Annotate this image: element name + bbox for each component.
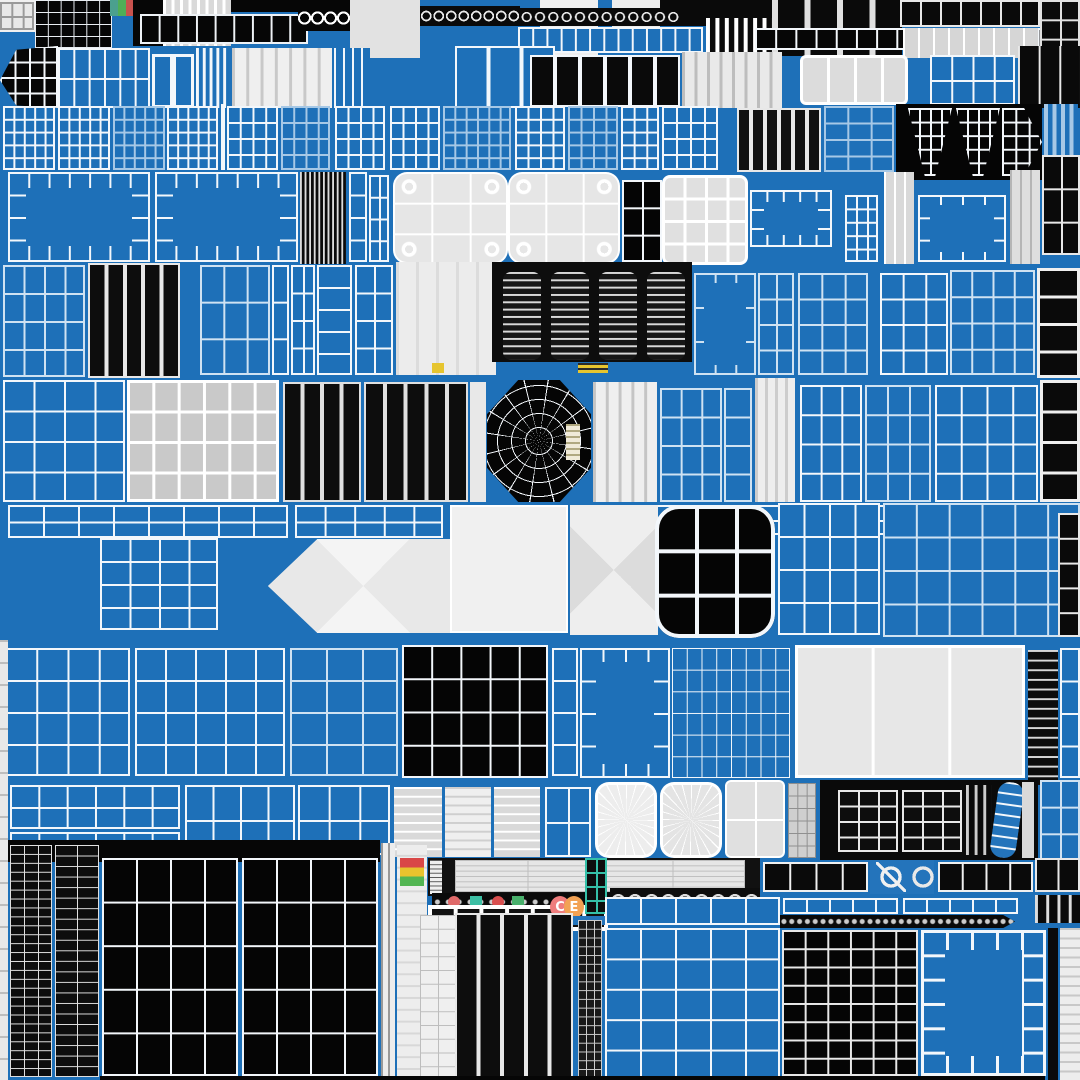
seat-b [508, 172, 620, 264]
grid-r6-d [865, 385, 931, 502]
radiator-3 [599, 272, 637, 360]
rail-bot-b [903, 898, 1018, 914]
grid-r3-d [167, 106, 218, 170]
slat-columns-b [682, 52, 782, 108]
black-grid-r9-b [902, 790, 962, 852]
blue-frame-sm [918, 195, 1006, 262]
blue-col-c [272, 265, 289, 375]
divider-line [221, 104, 225, 170]
dense-col-r8 [1028, 650, 1058, 785]
gray-col-r9b [1022, 782, 1034, 858]
grid-r3-m [824, 106, 894, 172]
black-arc-piece [1042, 155, 1080, 255]
radiator-2 [551, 272, 589, 360]
blue-slats-b [334, 48, 370, 108]
wire-ladder-b [55, 845, 99, 1077]
grid-r3-e [227, 106, 278, 170]
black-grid-r9-a [838, 790, 898, 852]
grid-r5-j [950, 270, 1035, 375]
black-grid-bl-b [242, 858, 378, 1076]
black-ladder-block [455, 913, 573, 1080]
door-panel-a-inner [26, 188, 132, 246]
blue-col-a [349, 172, 367, 262]
seat-underside [396, 262, 496, 375]
blue-panel-tr [930, 55, 1015, 105]
blue-window-frame [750, 190, 832, 247]
slat-sm-b [445, 787, 491, 857]
grid-r5-a [3, 265, 85, 377]
blue-frame-sm-inner [930, 205, 994, 252]
control-col [788, 783, 816, 858]
white-col-f [755, 378, 795, 502]
blue-window-frame-inner [764, 202, 818, 235]
bottom-edge [100, 1076, 1045, 1080]
thin-cols-bl [381, 843, 395, 1080]
vertical-text-chip [430, 860, 442, 894]
grid-r3-k [621, 106, 659, 170]
grill-dark [300, 172, 346, 264]
sq-frames-right [763, 862, 868, 892]
frame-r8-inner [596, 662, 654, 764]
blue-vstripes-a [196, 48, 230, 108]
black-col-br [1048, 928, 1058, 1080]
grid-r3-g [335, 106, 385, 170]
black-square-grid [402, 645, 548, 778]
grid-r6-b [660, 388, 722, 502]
grid-r5-f-inner [704, 283, 746, 365]
blue-grid-bot [605, 928, 780, 1080]
yellow-dash-b [578, 363, 608, 373]
fan-hub [566, 424, 580, 460]
grid-r3-j [568, 106, 618, 170]
grid-r3-h [390, 106, 440, 170]
blue-rail-bot-c [605, 897, 780, 925]
louver-c [364, 382, 468, 502]
fan-a [595, 782, 657, 858]
green-strip [118, 0, 126, 16]
fan-b [660, 782, 722, 858]
blue-frame-r9 [1040, 780, 1080, 860]
glyph-strip-b [520, 8, 680, 26]
wire-ladder-a [10, 845, 52, 1077]
door-panel-b [155, 172, 298, 262]
white-grid-sm [845, 195, 878, 262]
red-strip [126, 0, 133, 16]
arrow-left-panel [268, 539, 458, 633]
grid-r5-d [317, 265, 352, 375]
grid-r6-c [800, 385, 862, 502]
grid-r3-f [281, 106, 330, 170]
grid-r5-c [291, 265, 315, 375]
black-edge-tr [1018, 46, 1080, 108]
grid-r6-a [3, 380, 125, 502]
x-facet-panel [570, 505, 658, 635]
grid-r5-b [200, 265, 270, 375]
black-grid-bl-a [102, 858, 238, 1076]
grid-r8-d [552, 648, 578, 776]
gray-cols-r9 [966, 785, 992, 855]
white-col-br [1060, 928, 1080, 1080]
grid-r3-l [662, 106, 718, 170]
blue-frame-br [921, 930, 1046, 1076]
grid-r5-e [355, 265, 393, 375]
gray-col-b [884, 172, 914, 264]
slat-sm-c [494, 787, 540, 857]
grid-r9-c [545, 787, 591, 857]
container-dark [737, 108, 821, 172]
left-edge-strip [0, 640, 8, 1080]
grid-r6-e [935, 385, 1038, 502]
blue-frame-br-inner [945, 950, 1022, 1056]
rail-r9-a [10, 785, 180, 829]
blue-col-b [183, 265, 197, 375]
black-chip-r10 [1035, 858, 1080, 892]
white-square-panel-inner [458, 513, 560, 625]
radiator-4 [647, 272, 685, 360]
dots-arrow-strip [780, 915, 1015, 928]
tech-chip [585, 858, 607, 914]
grid-r7-a [778, 503, 880, 635]
gray-col-c [1010, 170, 1040, 264]
chip-strip [0, 2, 34, 30]
slot-strip-r7 [1058, 513, 1080, 637]
grid-r3-wide [443, 106, 511, 170]
grid-r7-b [883, 503, 1080, 637]
porthole [876, 862, 906, 892]
mesh-col [578, 920, 602, 1078]
teal-strip [110, 0, 118, 16]
white-col-d [470, 382, 486, 502]
gray-table [662, 175, 748, 265]
black-grid-br [782, 930, 918, 1076]
slot-col-a [1037, 268, 1080, 378]
center-grid [100, 538, 218, 630]
grid-r8-a [5, 648, 130, 776]
grid-r5-f [694, 273, 756, 375]
yellow-dash-a [432, 363, 444, 373]
lifebuoy-ring [908, 862, 938, 892]
rounded-port-grid [655, 505, 775, 638]
door-panel-b-inner [173, 188, 280, 246]
black-parts-block [35, 0, 112, 48]
grid-r3-a [3, 106, 55, 170]
slot-col-b [1040, 380, 1080, 502]
rail-bot-a [783, 898, 898, 914]
small-rect-row [140, 14, 308, 44]
dense-grid-r8 [672, 648, 790, 778]
glyph-strip-a [420, 6, 520, 26]
rail-b [295, 505, 443, 538]
grid-r3-c [113, 106, 165, 170]
uv-texture-atlas: CE [0, 0, 1080, 1080]
white-columns-a [232, 48, 332, 108]
blue-window-a [369, 175, 389, 262]
u-frames [530, 55, 680, 107]
grid-r3-i [515, 106, 565, 170]
grid-r5-g [758, 273, 794, 375]
rosette-row [298, 5, 350, 31]
black-chip-r10b [1035, 895, 1080, 923]
grid-r8-b [135, 648, 285, 776]
cushion-row [800, 55, 908, 105]
roof-wireframe [0, 46, 58, 108]
grid-r8-c [290, 648, 398, 776]
louver-b [283, 382, 361, 502]
gray-panels-r9 [725, 780, 785, 858]
black-tr-strip [900, 0, 1040, 27]
sq-frames-right2 [938, 862, 1033, 892]
blue-vpanel [58, 48, 150, 108]
light-triple-panel [795, 645, 1025, 778]
radiator-1 [503, 272, 541, 360]
rail-a [8, 505, 288, 538]
white-square-panel [450, 505, 568, 633]
black-window [622, 180, 662, 262]
grid-r5-h [798, 273, 868, 375]
seat-a [393, 172, 508, 264]
door-panel-a [8, 172, 150, 262]
rounded-cols [152, 54, 194, 108]
frame-r8 [580, 648, 670, 778]
slat-col-e [593, 382, 657, 502]
grid-r5-i [880, 273, 948, 375]
grid-r8-e [1060, 648, 1080, 778]
slat-col-bot [420, 915, 456, 1080]
grid-r6-b2 [724, 388, 752, 502]
grid-r3-b [58, 106, 110, 170]
louver-a [88, 263, 180, 378]
gray-grid [127, 380, 279, 502]
flag-decal [400, 858, 424, 886]
